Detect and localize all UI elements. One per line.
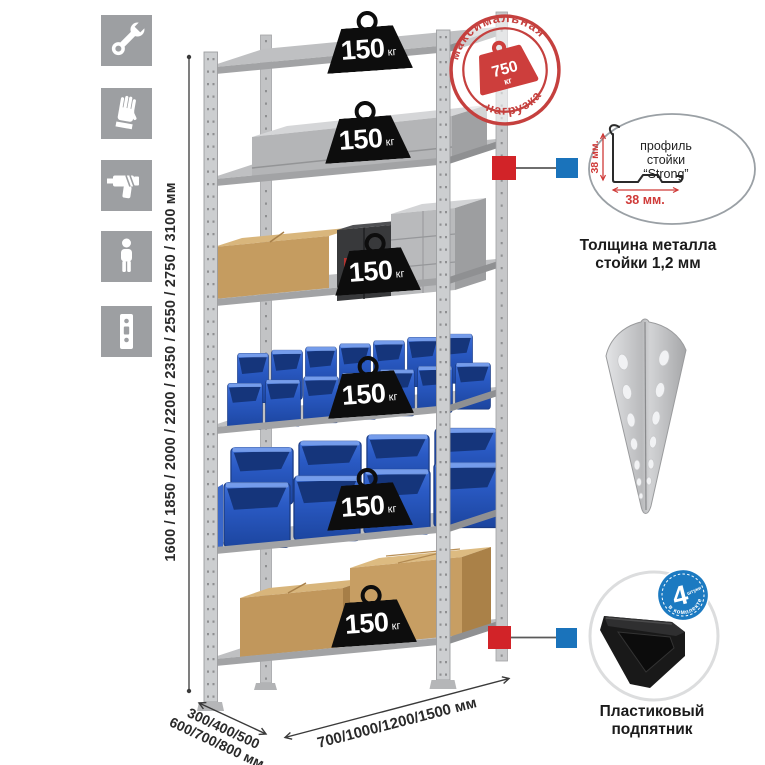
wrench-icon [101,15,152,66]
shelf-load-label-4: 150кг [324,353,414,419]
post-profile-diagram: 38 мм. 38 мм. профиль стойки “Strong” [589,114,755,224]
profile-label-3: “Strong” [643,167,688,181]
load-unit: кг [391,620,401,633]
angle-post-image [606,319,686,514]
load-value: 150 [344,606,390,640]
load-value: 150 [340,32,386,66]
shelf-load-label-6: 150кг [327,582,417,648]
shelving-infographic: 38 мм. 38 мм. профиль стойки “Strong” То… [0,0,765,765]
gloves-icon [101,88,152,139]
load-unit: кг [387,46,397,59]
shelf-load-label-3: 150кг [331,230,421,296]
max-load-stamp: максимальная нагрузка 750 кг [447,12,563,128]
load-value: 150 [340,489,386,523]
drill-icon [101,160,152,211]
profile-dim-vertical: 38 мм. [589,140,601,173]
profile-caption-2: стойки 1,2 мм [595,255,700,272]
foot-caption-1: Пластиковый [600,703,705,720]
foot-caption-2: подпятник [611,721,692,738]
load-value: 150 [348,254,394,288]
shelf-load-label-5: 150кг [323,465,413,531]
load-value: 150 [338,122,384,156]
profile-caption-1: Толщина металла [580,237,717,254]
profile-dim-horizontal: 38 мм. [625,193,664,207]
person-icon [101,231,152,282]
profile-label-1: профиль [640,139,692,153]
load-value: 150 [341,377,387,411]
profile-label-2: стойки [647,153,685,167]
load-unit: кг [387,503,397,516]
height-dimension-line [187,55,191,693]
rack-post-profile-icon [101,306,152,357]
load-unit: кг [388,391,398,404]
profile-callout-connector [492,156,578,180]
shelf-load-label-2: 150кг [321,98,411,164]
height-dimension-label: 1600 / 1850 / 2000 / 2200 / 2350 / 2550 … [163,182,179,561]
foot-callout-connector [488,626,577,649]
load-unit: кг [385,136,395,149]
shelf-load-label-1: 150кг [323,8,413,74]
load-unit: кг [395,268,405,281]
